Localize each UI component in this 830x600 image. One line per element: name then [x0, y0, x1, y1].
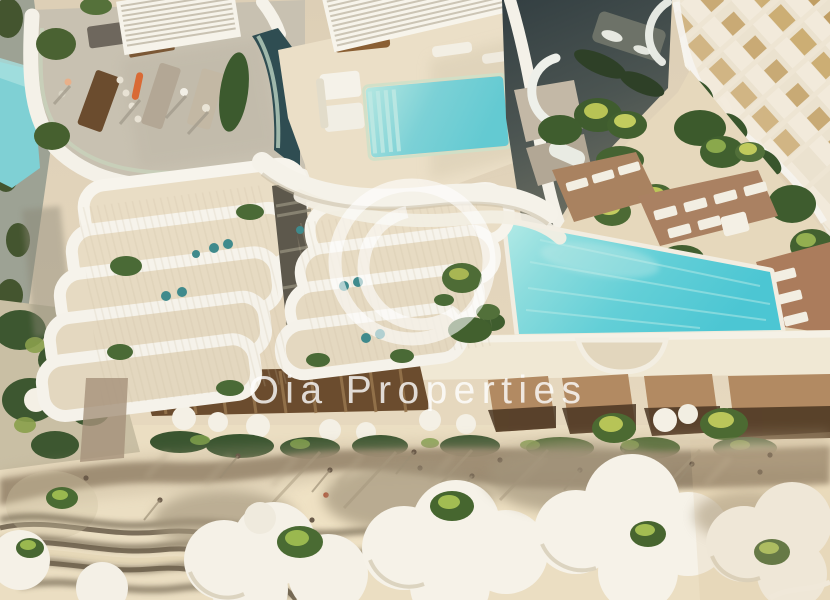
- svg-text:Oia Properties: Oia Properties: [249, 369, 588, 412]
